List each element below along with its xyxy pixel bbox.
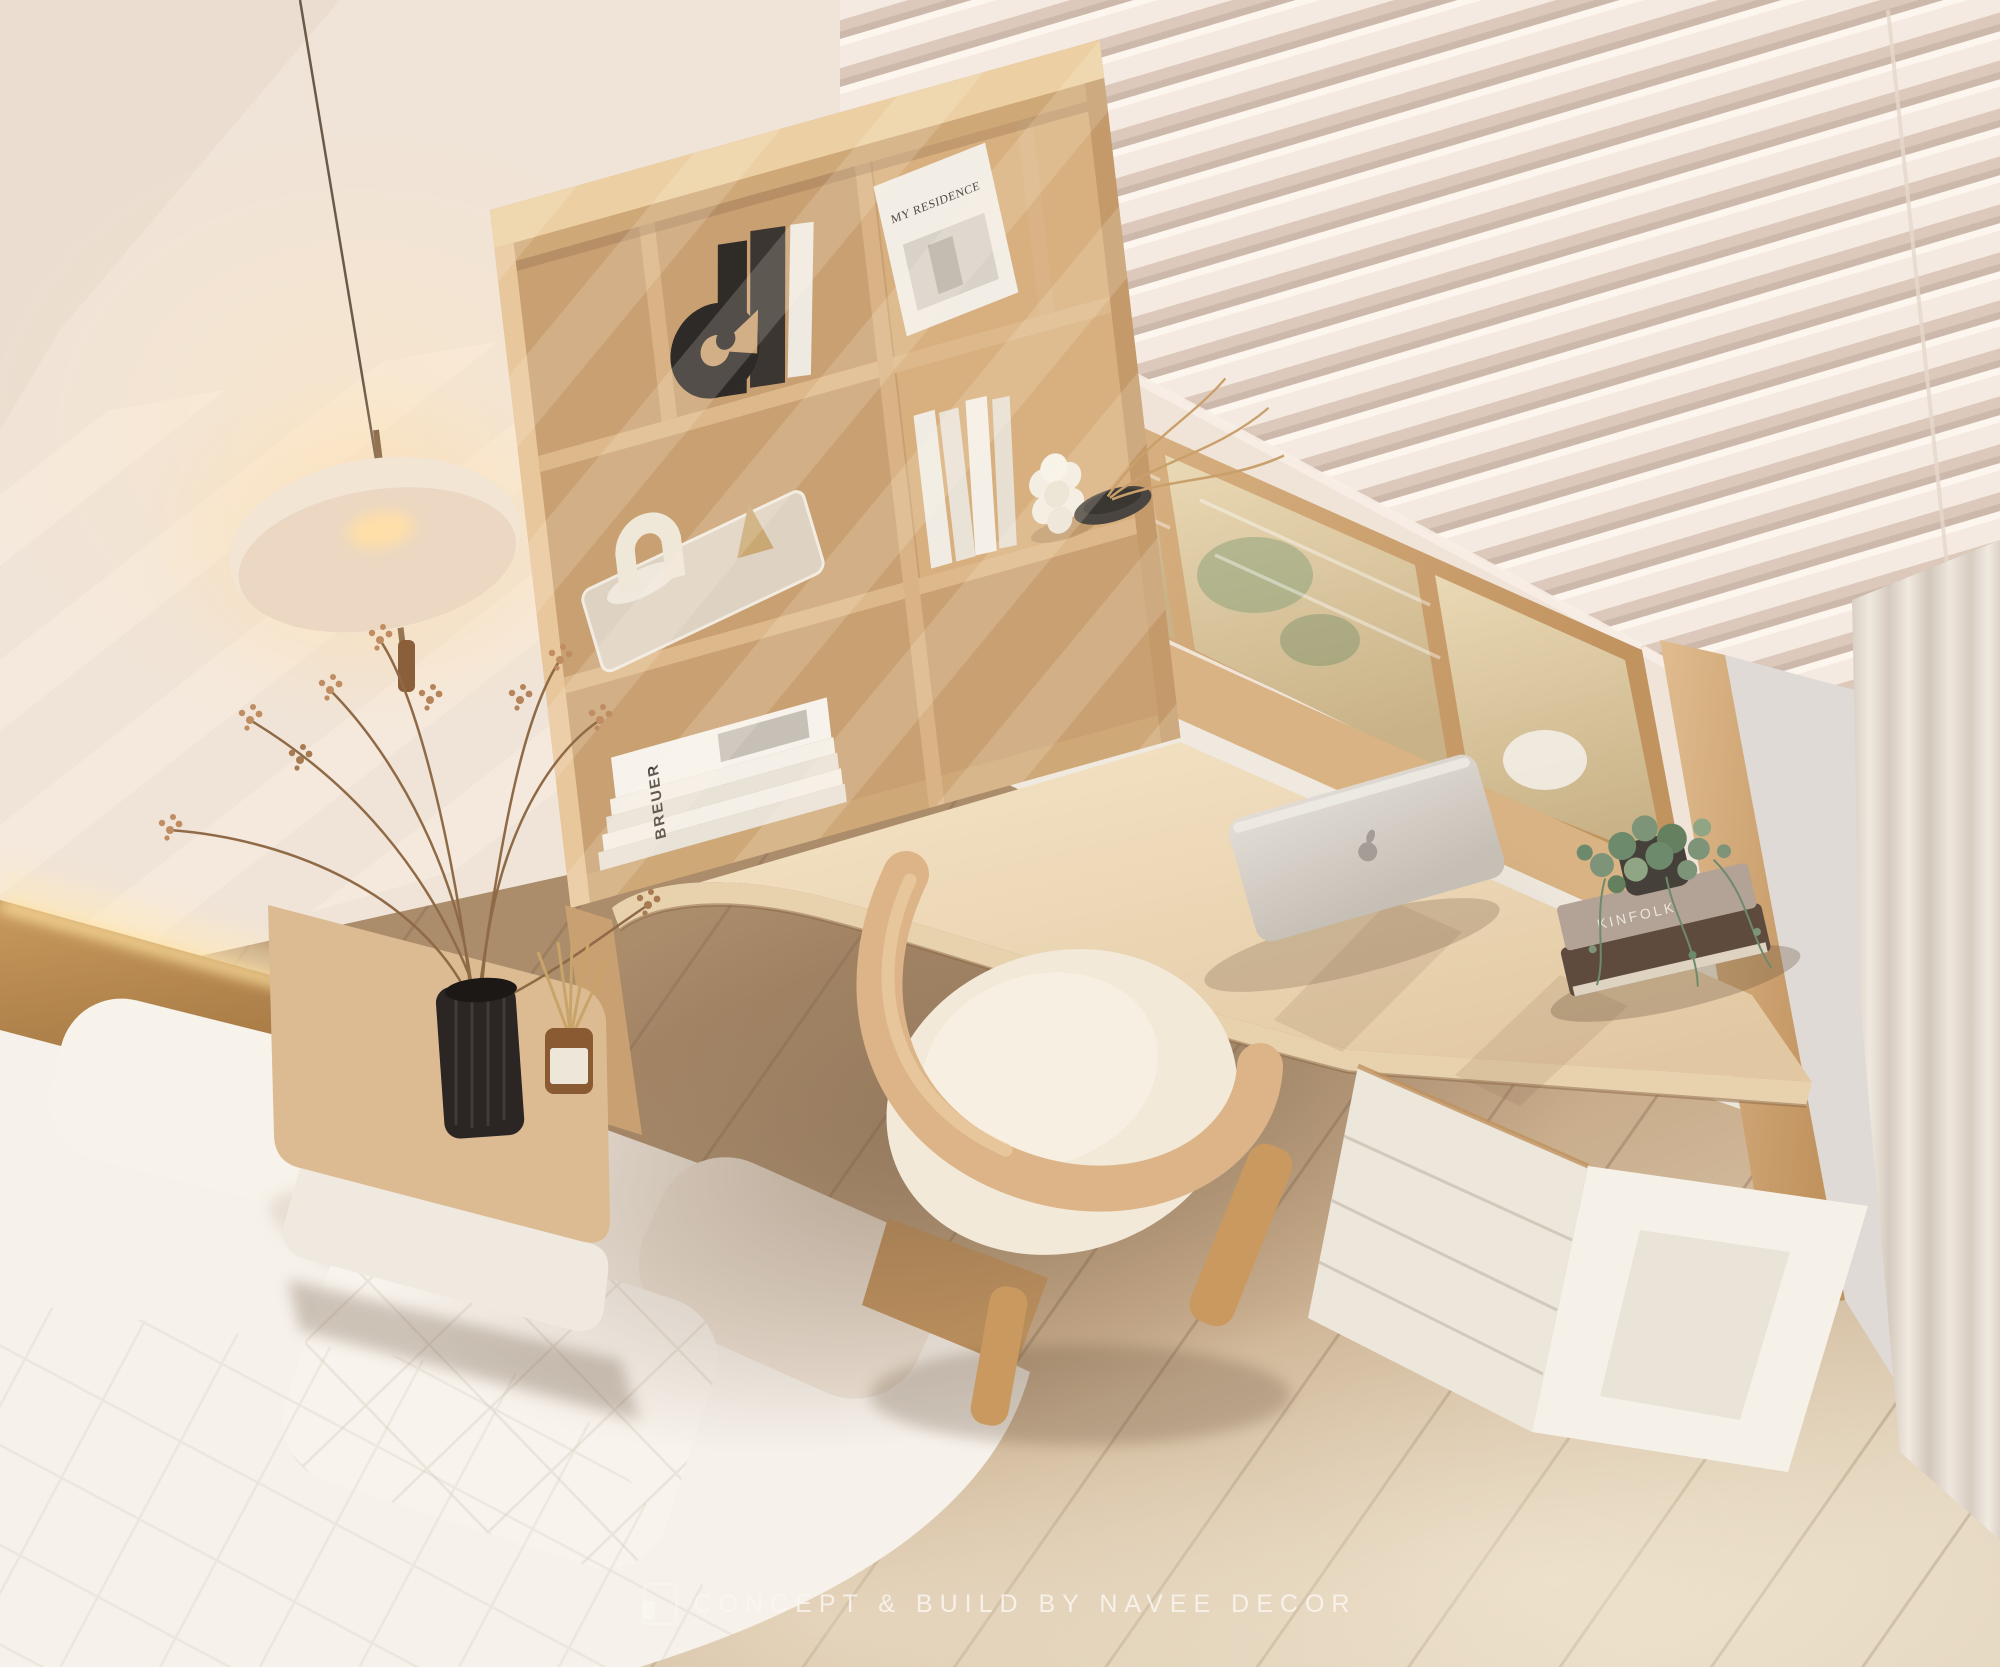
watermark-text: CONCEPT & BUILD BY NAVEE DECOR xyxy=(694,1590,1357,1619)
white-object-behind-glass xyxy=(1503,730,1587,790)
watermark-logo-mark xyxy=(643,1601,655,1619)
vase-body xyxy=(435,982,525,1139)
dried-flower-vase xyxy=(435,976,525,1140)
watermark: CONCEPT & BUILD BY NAVEE DECOR xyxy=(644,1583,1357,1625)
interior-render: MY RESIDENCE BREUER xyxy=(0,0,2000,1667)
plant-behind-glass-3 xyxy=(1280,614,1360,666)
lamp-counterweight xyxy=(398,640,415,692)
chair-shadow xyxy=(870,1345,1290,1445)
diffuser-label xyxy=(550,1048,588,1084)
watermark-logo-icon xyxy=(644,1583,678,1625)
